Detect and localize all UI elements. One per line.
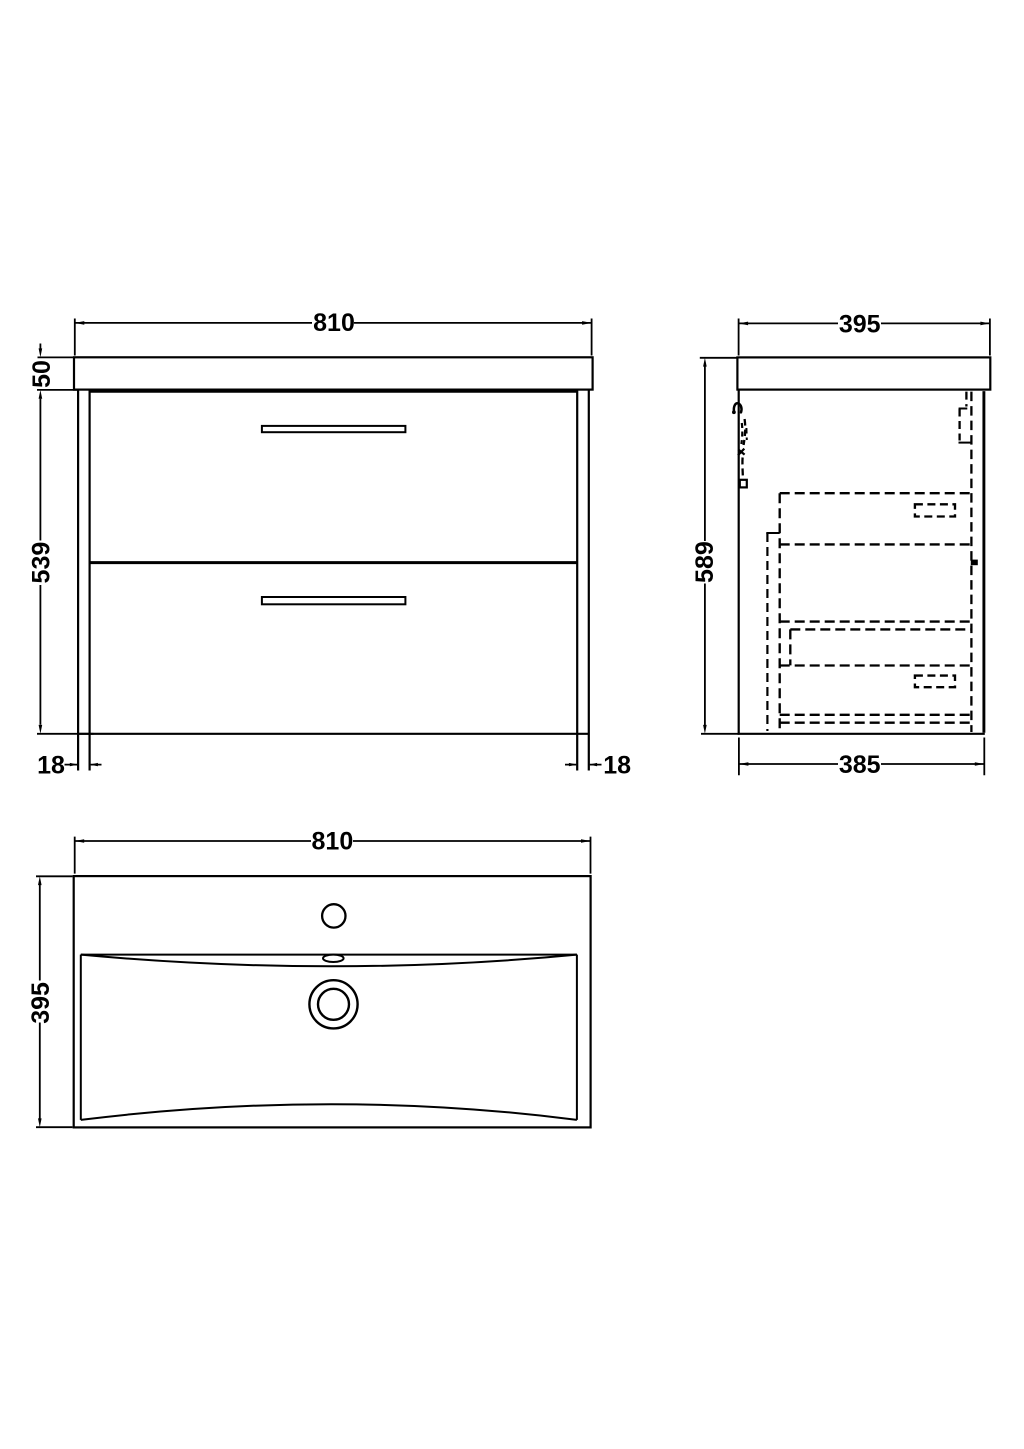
svg-text:18: 18 bbox=[37, 752, 65, 780]
svg-text:385: 385 bbox=[839, 751, 881, 779]
svg-text:395: 395 bbox=[27, 982, 55, 1024]
svg-text:539: 539 bbox=[27, 542, 55, 584]
svg-text:395: 395 bbox=[839, 310, 881, 338]
svg-text:18: 18 bbox=[603, 752, 631, 780]
svg-text:810: 810 bbox=[313, 309, 355, 337]
svg-text:810: 810 bbox=[312, 827, 354, 855]
svg-text:589: 589 bbox=[691, 541, 719, 583]
svg-text:50: 50 bbox=[28, 360, 56, 388]
